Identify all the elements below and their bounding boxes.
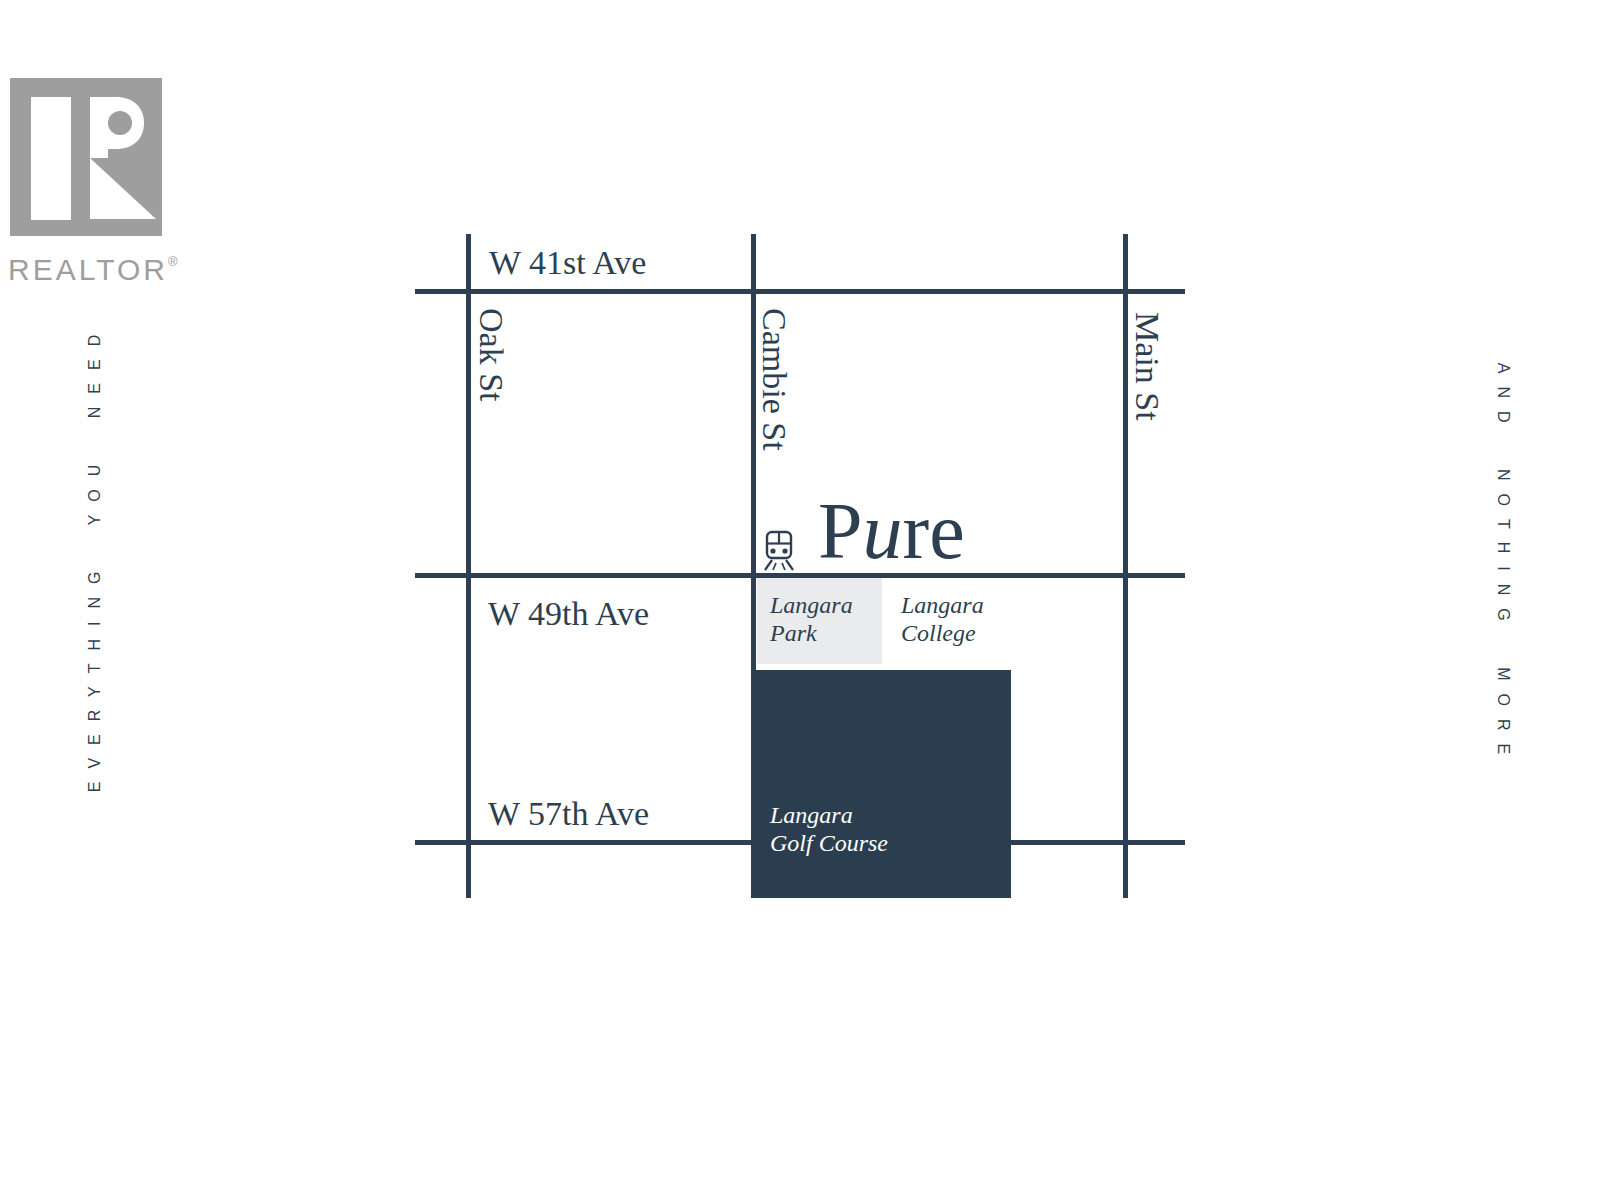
langara-park-label: Langara Park — [770, 591, 853, 647]
langara-golf-course-block — [751, 670, 1011, 898]
tagline-right: AND NOTHING MORE — [1494, 363, 1512, 767]
road-w-41st-ave — [415, 289, 1185, 294]
pure-wordmark-u: u — [863, 487, 903, 575]
langara-park-line2: Park — [770, 619, 853, 647]
street-label-oak-st: Oak St — [474, 308, 508, 402]
location-map-page: REALTOR® EVERYTHING YOU NEED AND NOTHING… — [0, 0, 1600, 1200]
tagline-left: EVERYTHING YOU NEED — [86, 322, 104, 792]
pure-wordmark-p: P — [818, 487, 863, 575]
realtor-r-icon — [10, 78, 162, 236]
langara-park-line1: Langara — [770, 591, 853, 619]
realtor-wordmark: REALTOR® — [8, 246, 178, 286]
street-label-main-st: Main St — [1130, 312, 1164, 421]
street-label-w-49th-ave: W 49th Ave — [488, 597, 649, 631]
pure-wordmark: Pure — [818, 491, 965, 571]
street-label-w-41st-ave: W 41st Ave — [489, 246, 646, 280]
langara-golf-course-label: Langara Golf Course — [770, 801, 888, 857]
registered-mark: ® — [168, 254, 178, 269]
street-label-cambie-st: Cambie St — [757, 308, 791, 451]
langara-golf-line1: Langara — [770, 801, 888, 829]
langara-golf-line2: Golf Course — [770, 829, 888, 857]
langara-college-line1: Langara — [901, 591, 984, 619]
road-main-st — [1123, 234, 1128, 898]
langara-college-label: Langara College — [901, 591, 984, 647]
pure-wordmark-re: re — [903, 487, 965, 575]
train-station-icon — [760, 530, 798, 572]
road-oak-st — [466, 234, 471, 898]
street-label-w-57th-ave: W 57th Ave — [488, 797, 649, 831]
realtor-wordmark-text: REALTOR — [8, 253, 168, 286]
langara-college-line2: College — [901, 619, 984, 647]
